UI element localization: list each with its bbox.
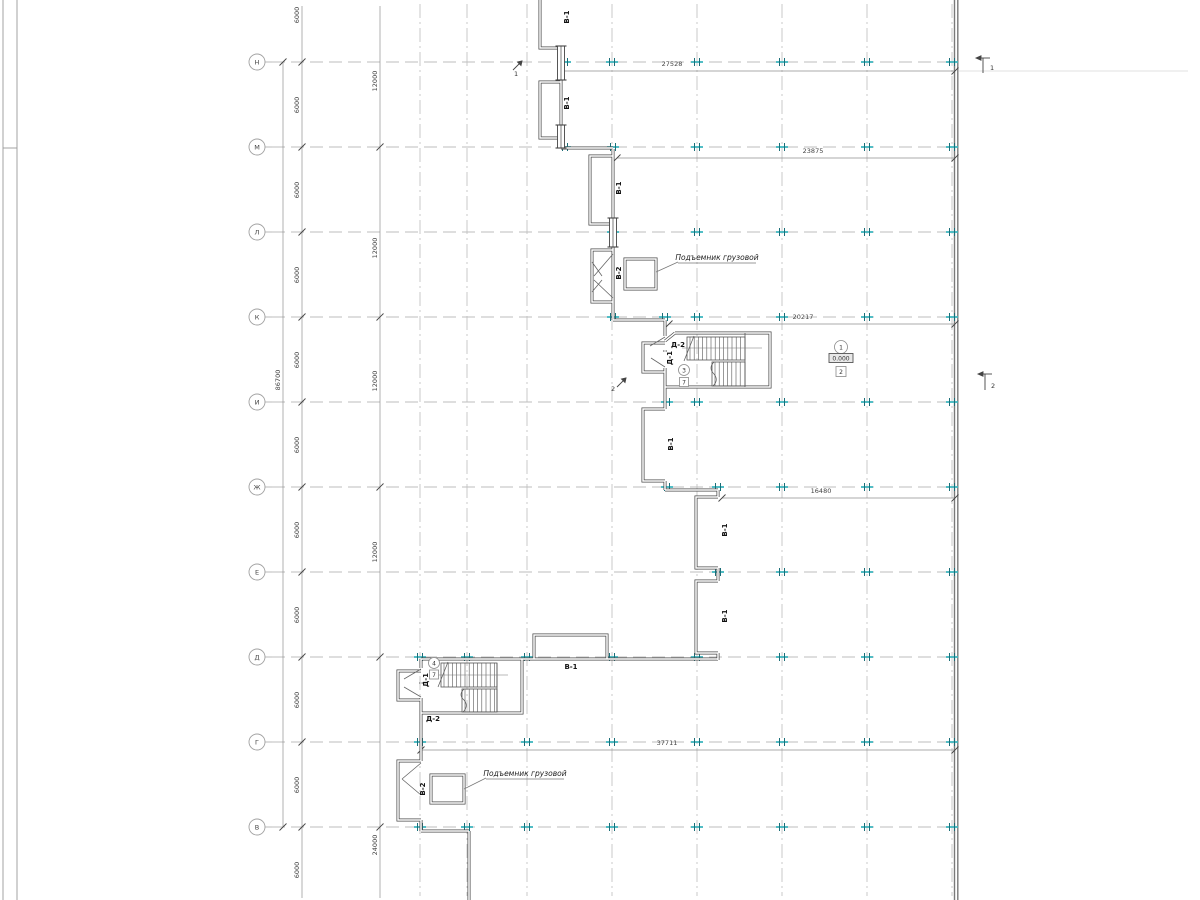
grid-bubble: Л	[249, 224, 272, 240]
dim-23875: 23875	[803, 147, 824, 155]
hall-tag: 1 0.000 2	[829, 341, 853, 377]
dim-6000: 6000	[293, 862, 301, 879]
grid-row-label: Ж	[253, 483, 260, 491]
section-2-right: 2	[991, 382, 995, 390]
dim-6000: 6000	[293, 352, 301, 369]
dim-total: 86700	[274, 370, 282, 391]
hoist-tag: В-2	[615, 266, 623, 279]
dim-6000: 6000	[293, 97, 301, 114]
grid-row-label: Л	[255, 228, 260, 236]
hoist-label-lower: Подъемник грузовой	[483, 769, 566, 778]
window-tag: В-1	[721, 609, 729, 622]
window-tag: В-1	[563, 10, 571, 23]
grid-tick	[946, 738, 958, 746]
horizontal-dimension-ticks	[418, 68, 959, 754]
window-tag: В-1	[564, 663, 577, 671]
grid-row-label: Г	[255, 738, 259, 746]
dim-6000: 6000	[293, 267, 301, 284]
grid-bubble: Г	[249, 734, 272, 750]
door-tag: Д-1	[666, 351, 674, 365]
door-tag: Д-2	[671, 341, 685, 349]
dim-12000: 12000	[371, 371, 379, 392]
horizontal-dimensions	[421, 71, 955, 750]
dim-6000: 6000	[293, 607, 301, 624]
horizontal-dimension-labels: 27528 23875 20217 16480 37711	[657, 60, 832, 747]
section-1-left: 1	[514, 70, 518, 78]
grid-bubble: Ж	[249, 479, 272, 495]
dim-6000: 6000	[293, 437, 301, 454]
window-symbol	[608, 218, 619, 247]
door-tag: Д-1	[422, 673, 430, 687]
grid-row-label: К	[255, 313, 260, 321]
grid-tick	[691, 738, 703, 746]
svg-text:1: 1	[839, 344, 843, 351]
svg-text:7: 7	[682, 380, 686, 387]
stair-mid-tag: 3 7	[679, 365, 690, 387]
dim-24000: 24000	[371, 835, 379, 856]
dim-20217: 20217	[793, 313, 814, 321]
grid-tick	[606, 738, 618, 746]
grid-row-label: Д	[254, 653, 259, 661]
hoist-tag: В-2	[419, 782, 427, 795]
grid-row-label: Е	[255, 568, 259, 576]
grid-tick	[521, 738, 533, 746]
floorplan-drawing: НМЛКИЖЕДГВ 86700 6000 6000 6000 6000 600…	[0, 0, 1200, 900]
grid-bubble: Д	[249, 649, 272, 665]
floorplan-canvas[interactable]: НМЛКИЖЕДГВ 86700 6000 6000 6000 6000 600…	[0, 0, 1200, 900]
grid-tick	[861, 738, 873, 746]
window-tag: В-1	[667, 437, 675, 450]
walls	[398, 0, 770, 900]
door-tag: Д-2	[426, 715, 440, 723]
grid-row-label: В	[255, 823, 259, 831]
section-2-left: 2	[611, 385, 615, 393]
grid-row-label: Н	[255, 58, 260, 66]
grid-bubble: Н	[249, 54, 272, 70]
dim-12000: 12000	[371, 238, 379, 259]
section-markers: 1 1 2 2	[513, 56, 995, 393]
hoist-label-upper: Подъемник грузовой	[675, 253, 758, 262]
svg-text:7: 7	[432, 672, 436, 679]
svg-text:2: 2	[839, 369, 843, 376]
dim-6000: 6000	[293, 692, 301, 709]
dim-27528: 27528	[662, 60, 683, 68]
grid-bubble: Е	[249, 564, 272, 580]
opening-labels: В-1 В-1 В-1 В-1 В-1 В-1 В-1 В-2 В-2 Д-2 …	[419, 10, 729, 795]
grid-row-label: М	[254, 143, 260, 151]
grid-intersection-ticks	[414, 58, 958, 831]
window-tag: В-1	[721, 523, 729, 536]
section-1-right: 1	[990, 64, 994, 72]
grid-bubble: К	[249, 309, 272, 325]
dim-6000: 6000	[293, 7, 301, 24]
grid-lines	[272, 4, 953, 896]
east-wall	[955, 0, 1189, 900]
dim-37711: 37711	[657, 739, 678, 747]
window-symbol	[556, 46, 567, 80]
grid-bubble: И	[249, 394, 272, 410]
dim-6000: 6000	[293, 182, 301, 199]
window-symbol	[556, 125, 567, 148]
room-tags: 3 7 4 7 1 0.000 2	[429, 341, 854, 680]
grid-row-label: И	[255, 398, 260, 406]
grid-bubbles: НМЛКИЖЕДГВ	[249, 54, 272, 835]
dimension-chain-labels: 86700 6000 6000 6000 6000 6000 6000 6000…	[274, 7, 379, 879]
level-mark: 0.000	[832, 356, 849, 363]
dim-6000: 6000	[293, 522, 301, 539]
stair-flights	[430, 333, 762, 712]
svg-text:3: 3	[682, 367, 686, 374]
dim-16480: 16480	[811, 487, 832, 495]
grid-tick	[776, 738, 788, 746]
dim-12000: 12000	[371, 71, 379, 92]
sheet-frame	[3, 0, 17, 900]
dim-12000: 12000	[371, 542, 379, 563]
window-tag: В-1	[563, 96, 571, 109]
grid-bubble: М	[249, 139, 272, 155]
grid-tick	[661, 398, 673, 406]
stair-low-tag: 4 7	[429, 658, 440, 680]
svg-text:4: 4	[432, 660, 436, 667]
window-tag: В-1	[615, 181, 623, 194]
grid-bubble: В	[249, 819, 272, 835]
dim-6000: 6000	[293, 777, 301, 794]
